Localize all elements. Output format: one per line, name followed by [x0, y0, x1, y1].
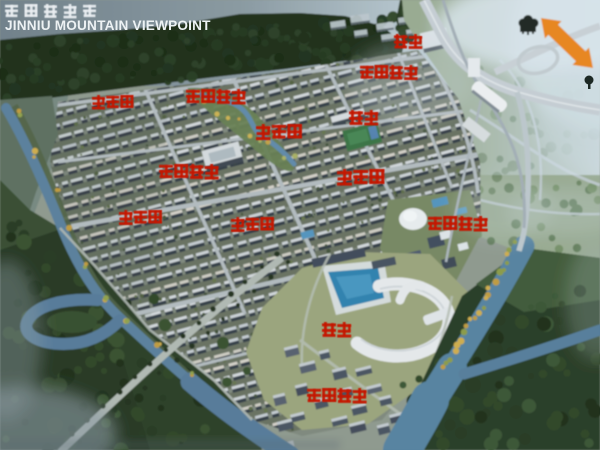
svg-text:JINNIU MOUNTAIN VIEWPOINT: JINNIU MOUNTAIN VIEWPOINT: [5, 18, 211, 33]
